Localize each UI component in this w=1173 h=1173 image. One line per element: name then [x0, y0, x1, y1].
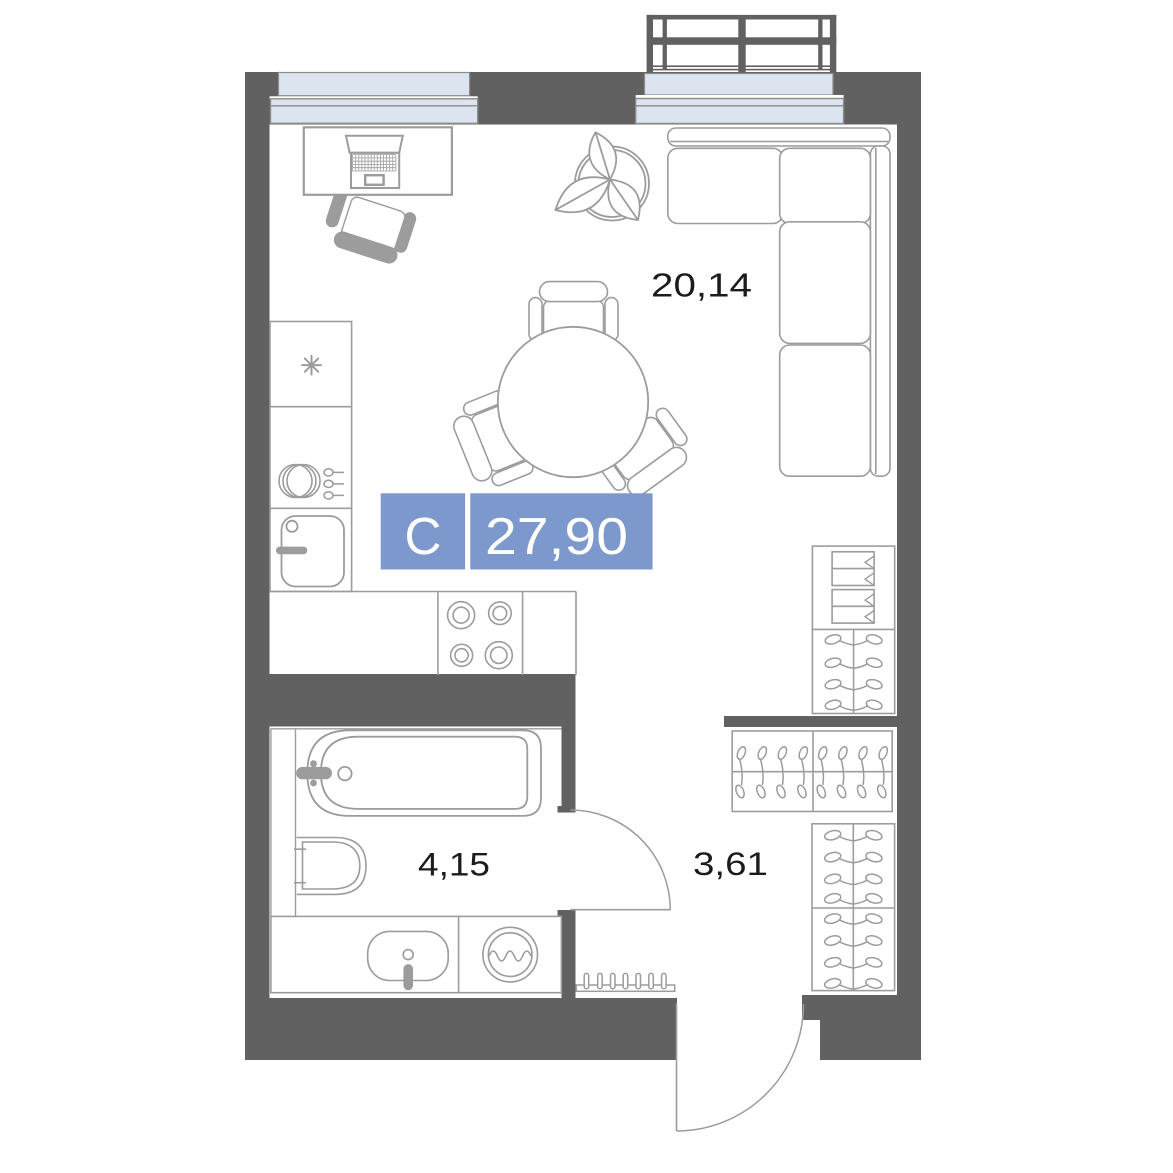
svg-text:27,90: 27,90 — [485, 508, 628, 566]
svg-text:20,14: 20,14 — [651, 267, 752, 304]
svg-text:4,15: 4,15 — [418, 847, 490, 883]
svg-text:С: С — [405, 508, 442, 566]
svg-text:3,61: 3,61 — [693, 846, 768, 882]
